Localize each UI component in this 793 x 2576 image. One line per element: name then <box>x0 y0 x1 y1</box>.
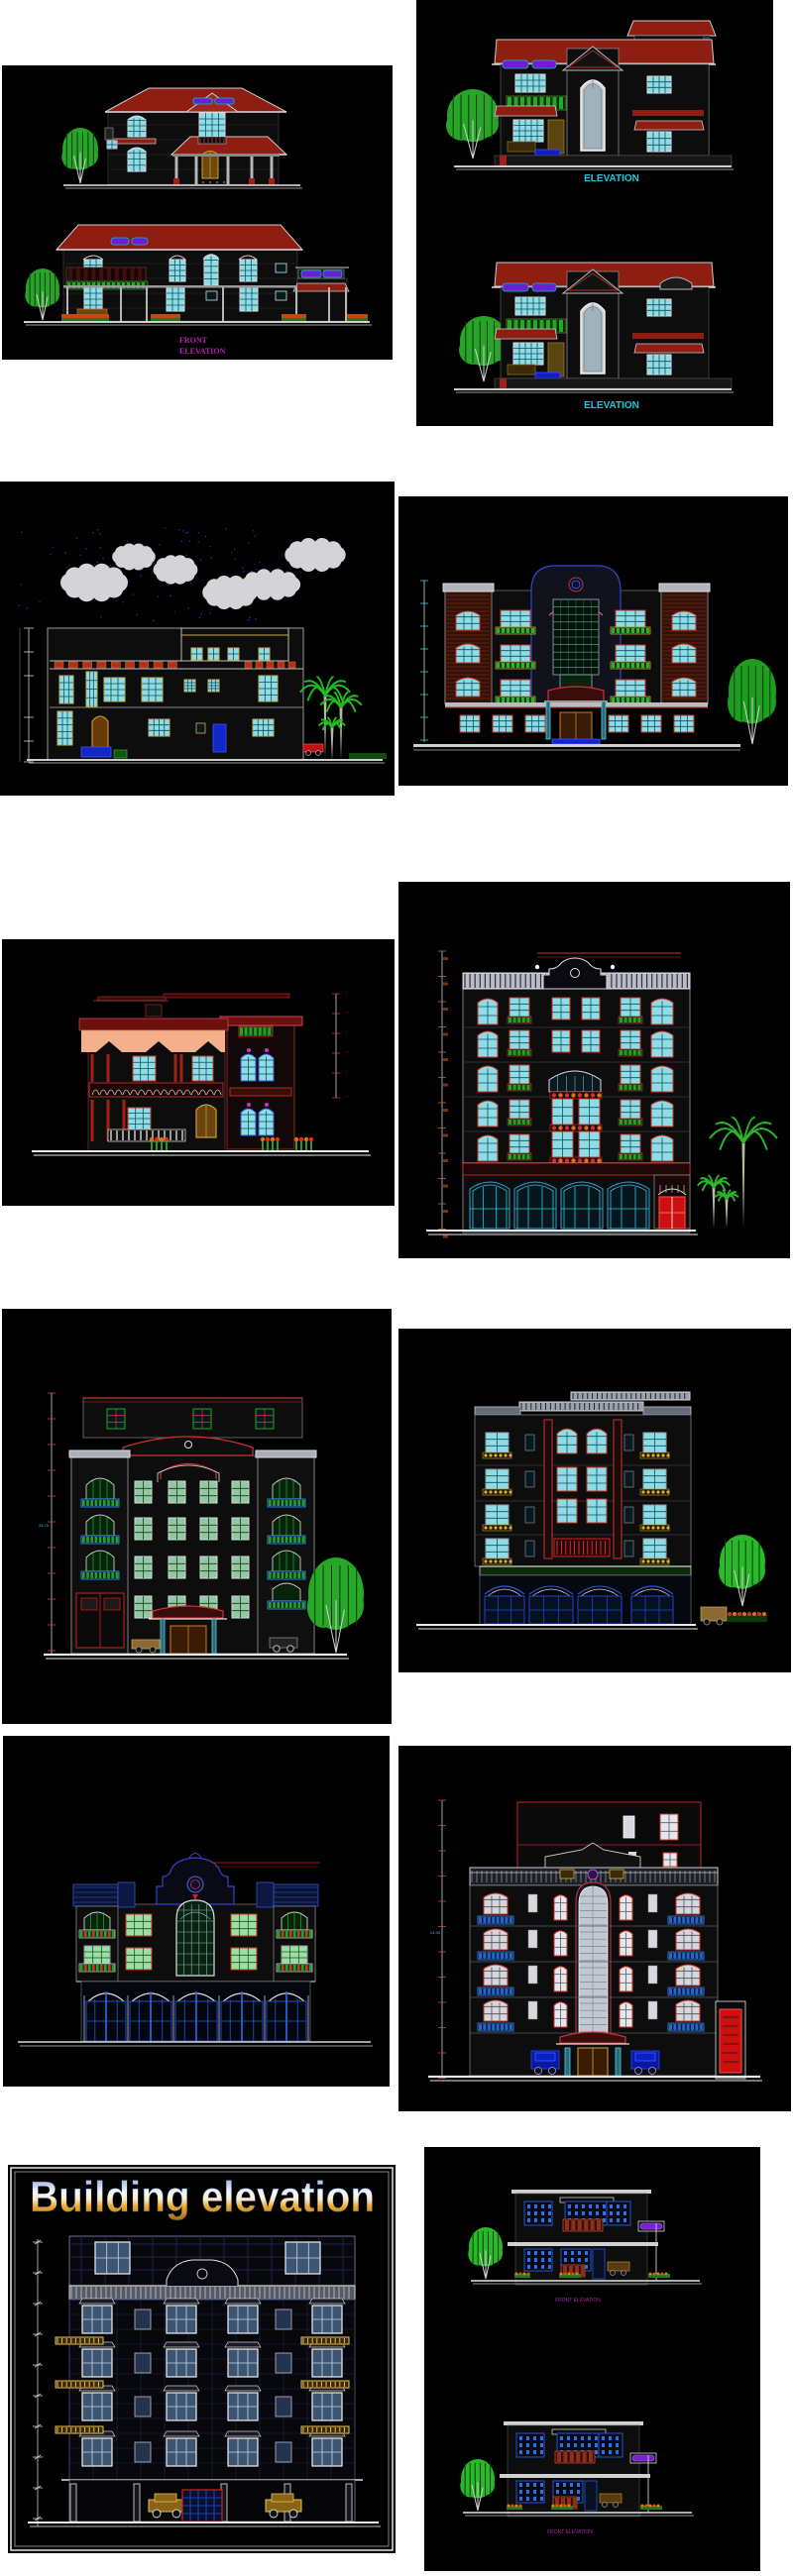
svg-text:24.30: 24.30 <box>430 1930 441 1935</box>
svg-text:FRONT ELEVATION: FRONT ELEVATION <box>547 2529 593 2535</box>
svg-text:ELEVATION: ELEVATION <box>584 400 639 411</box>
svg-text:ELEVATION: ELEVATION <box>179 347 226 356</box>
svg-text:25.75: 25.75 <box>39 1523 50 1528</box>
svg-text:ELEVATION: ELEVATION <box>584 173 639 184</box>
svg-text:FRONT ELEVATION: FRONT ELEVATION <box>555 2298 601 2304</box>
svg-text:Building elevation: Building elevation <box>30 2173 375 2221</box>
svg-text:FRONT: FRONT <box>179 336 208 345</box>
